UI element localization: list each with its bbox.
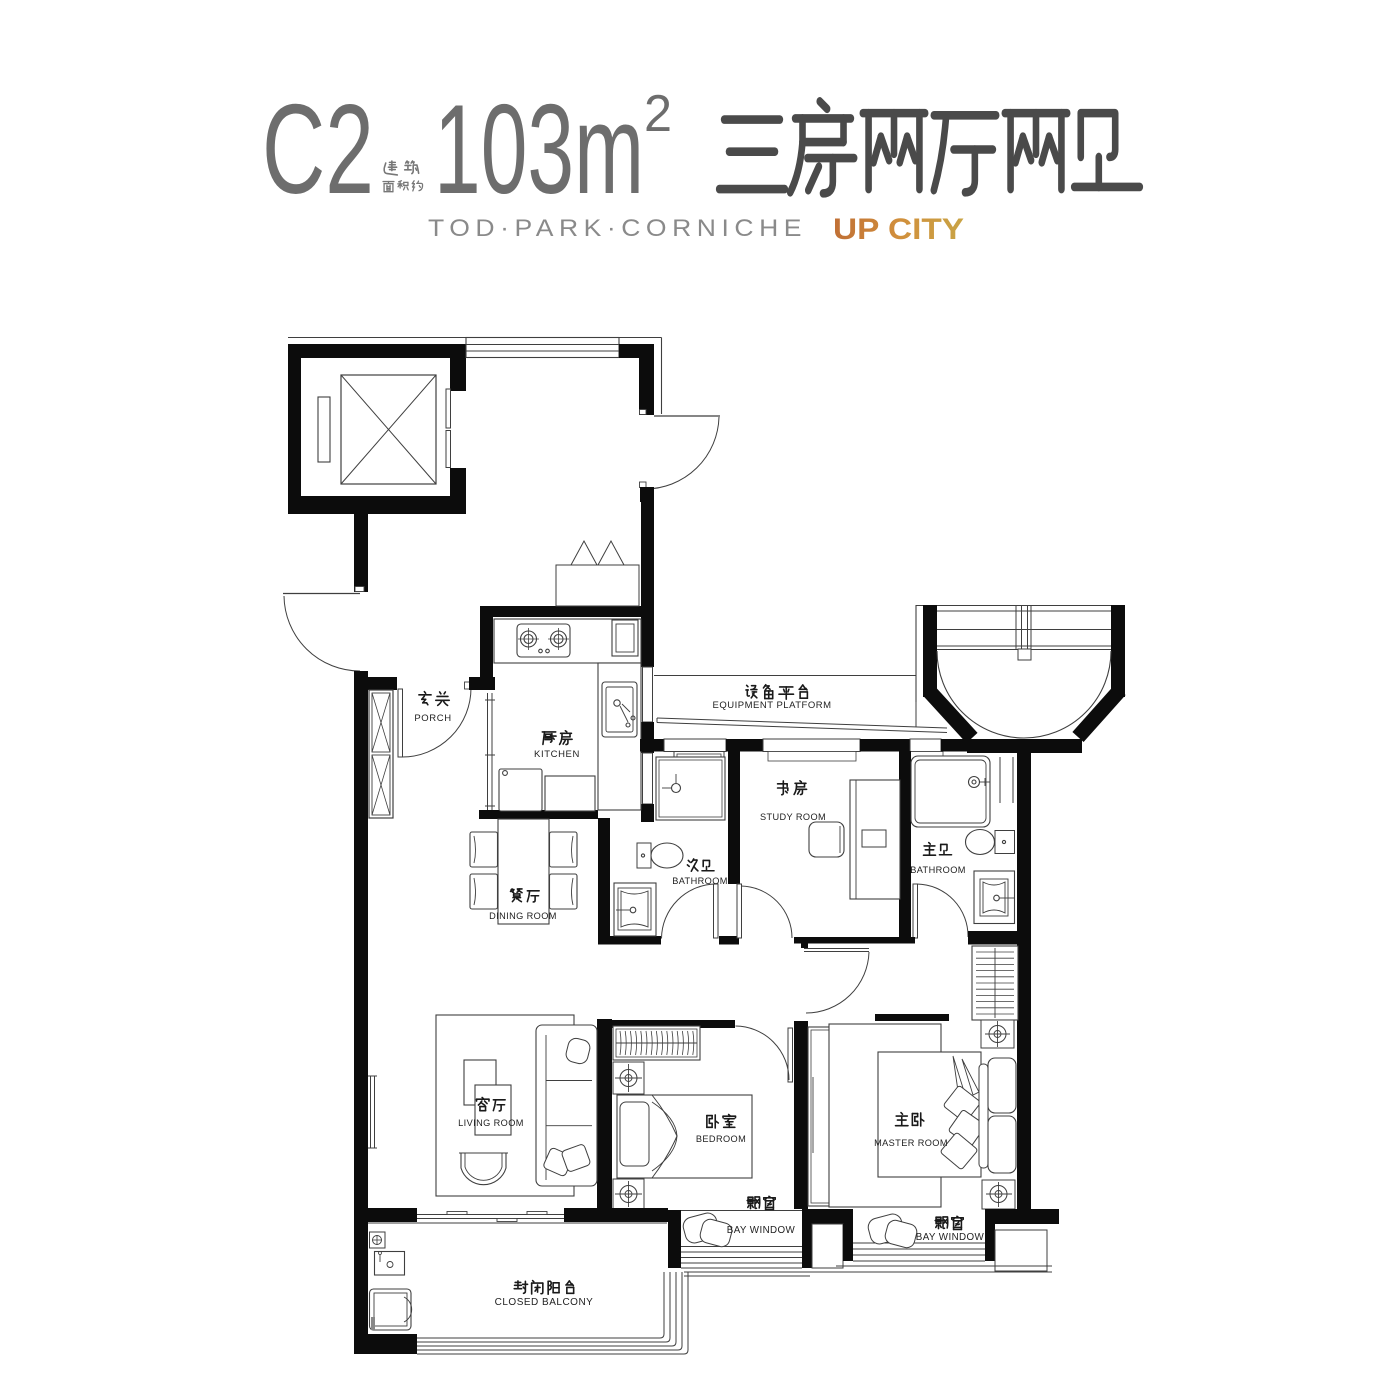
svg-text:EQUIPMENT PLATFORM: EQUIPMENT PLATFORM bbox=[713, 700, 832, 711]
svg-text:DINING ROOM: DINING ROOM bbox=[489, 911, 557, 921]
svg-text:KITCHEN: KITCHEN bbox=[534, 749, 580, 760]
svg-text:C2: C2 bbox=[262, 78, 374, 220]
svg-text:PORCH: PORCH bbox=[414, 713, 451, 724]
svg-text:BEDROOM: BEDROOM bbox=[696, 1134, 746, 1144]
svg-text:BATHROOM: BATHROOM bbox=[910, 865, 966, 875]
svg-text:2: 2 bbox=[644, 85, 672, 143]
svg-text:TOD·PARK·CORNICHE: TOD·PARK·CORNICHE bbox=[428, 215, 807, 242]
svg-text:CLOSED BALCONY: CLOSED BALCONY bbox=[495, 1297, 594, 1308]
svg-text:BAY WINDOW: BAY WINDOW bbox=[916, 1232, 985, 1243]
svg-text:103m: 103m bbox=[434, 78, 644, 220]
svg-text:LIVING ROOM: LIVING ROOM bbox=[458, 1118, 524, 1128]
svg-text:BAY WINDOW: BAY WINDOW bbox=[727, 1225, 796, 1236]
svg-text:STUDY ROOM: STUDY ROOM bbox=[760, 812, 826, 822]
svg-text:MASTER ROOM: MASTER ROOM bbox=[874, 1138, 948, 1148]
svg-text:BATHROOM: BATHROOM bbox=[672, 876, 728, 886]
svg-text:UP CITY: UP CITY bbox=[833, 213, 964, 246]
